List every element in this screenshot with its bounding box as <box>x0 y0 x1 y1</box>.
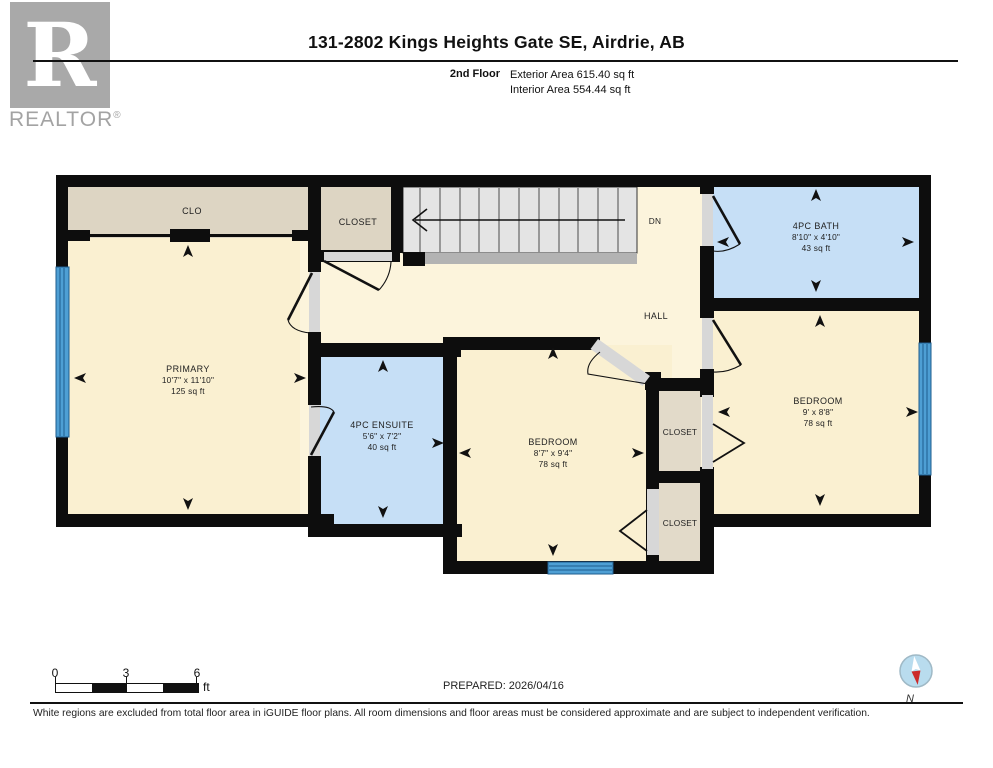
floorplan-drawing: CLO CLOSET PRIMARY 10'7" x 11'10" 125 sq… <box>0 0 993 768</box>
room-bedroom-center-dims: 8'7" x 9'4" <box>534 448 572 458</box>
wall <box>308 456 321 524</box>
room-closet-mid-label: CLOSET <box>663 427 697 437</box>
wall <box>700 175 714 194</box>
wall <box>443 337 600 350</box>
exterior-area-text: Exterior Area 615.40 sq ft <box>510 68 634 83</box>
scale-segment <box>56 684 92 692</box>
room-bedroom-center-label: BEDROOM <box>528 437 577 447</box>
realtor-logo-letter: R <box>23 11 96 99</box>
room-primary-sqft: 125 sq ft <box>171 386 205 396</box>
wall <box>700 514 931 527</box>
wall <box>652 471 713 483</box>
wall <box>700 298 931 311</box>
room-primary-dims: 10'7" x 11'10" <box>162 375 214 385</box>
window-primary <box>56 267 69 437</box>
area-summary: Exterior Area 615.40 sq ft Interior Area… <box>510 68 634 98</box>
interior-area-text: Interior Area 554.44 sq ft <box>510 83 634 98</box>
title-divider <box>33 60 958 62</box>
scale-bar <box>55 683 199 693</box>
room-ensuite-sqft: 40 sq ft <box>368 442 397 452</box>
scale-tick-6: 6 <box>187 666 207 680</box>
room-bedroom-right-sqft: 78 sq ft <box>804 418 833 428</box>
door-opening-closet-bottom <box>647 489 659 555</box>
room-primary-label: PRIMARY <box>166 364 210 374</box>
floorplan-page: CLO CLOSET PRIMARY 10'7" x 11'10" 125 sq… <box>0 0 993 768</box>
registered-trademark-icon: ® <box>113 110 121 121</box>
room-hall-label: HALL <box>644 311 668 321</box>
room-clo-label: CLO <box>182 206 202 216</box>
wall <box>170 229 210 242</box>
realtor-logo-tile: R <box>10 2 110 108</box>
scale-unit-label: ft <box>203 680 210 694</box>
room-bath-dims: 8'10" x 4'10" <box>792 232 840 242</box>
wall <box>68 230 90 241</box>
room-bath-sqft: 43 sq ft <box>802 243 831 253</box>
wall <box>308 524 462 537</box>
door-opening-closet-mid <box>702 395 713 469</box>
scale-segment <box>127 684 163 692</box>
prepared-date: PREPARED: 2026/04/16 <box>443 680 564 692</box>
scale-segment <box>163 684 199 692</box>
wall <box>56 514 321 527</box>
stairs-dn-label: DN <box>649 216 661 226</box>
page-title: 131-2802 Kings Heights Gate SE, Airdrie,… <box>0 32 993 53</box>
door-opening-bath <box>702 194 713 246</box>
realtor-brand-text: REALTOR <box>9 108 113 131</box>
wall <box>443 337 457 574</box>
scale-segment <box>92 684 128 692</box>
staircase <box>403 187 637 266</box>
compass-icon <box>893 650 939 694</box>
room-closet-bottom-label: CLOSET <box>663 518 697 528</box>
room-bedroom-right-dims: 9' x 8'8" <box>803 407 834 417</box>
room-bedroom-right-label: BEDROOM <box>793 396 842 406</box>
wall <box>56 175 931 187</box>
door-opening-primary <box>309 272 320 332</box>
room-ensuite-label: 4PC ENSUITE <box>350 420 413 430</box>
wall <box>308 332 321 405</box>
wall <box>391 175 403 253</box>
room-closet-top-label: CLOSET <box>339 217 378 227</box>
wall <box>292 230 308 241</box>
disclaimer-text: White regions are excluded from total fl… <box>33 708 968 719</box>
wall <box>700 514 714 574</box>
door-opening-closet-top <box>324 252 392 261</box>
stair-wall-stub <box>403 252 425 266</box>
floor-label: 2nd Floor <box>380 68 500 80</box>
footer-divider <box>30 702 963 704</box>
room-bedroom-center-sqft: 78 sq ft <box>539 459 568 469</box>
window-bedroom-right <box>919 343 931 475</box>
realtor-logo-wordmark: REALTOR® <box>9 108 122 132</box>
door-opening-bedroom-right <box>702 318 713 369</box>
wall <box>308 343 461 357</box>
room-bath-label: 4PC BATH <box>793 221 840 231</box>
room-ensuite-dims: 5'6" x 7'2" <box>363 431 401 441</box>
window-bedroom-center <box>548 562 613 574</box>
stair-landing-strip <box>425 253 637 264</box>
